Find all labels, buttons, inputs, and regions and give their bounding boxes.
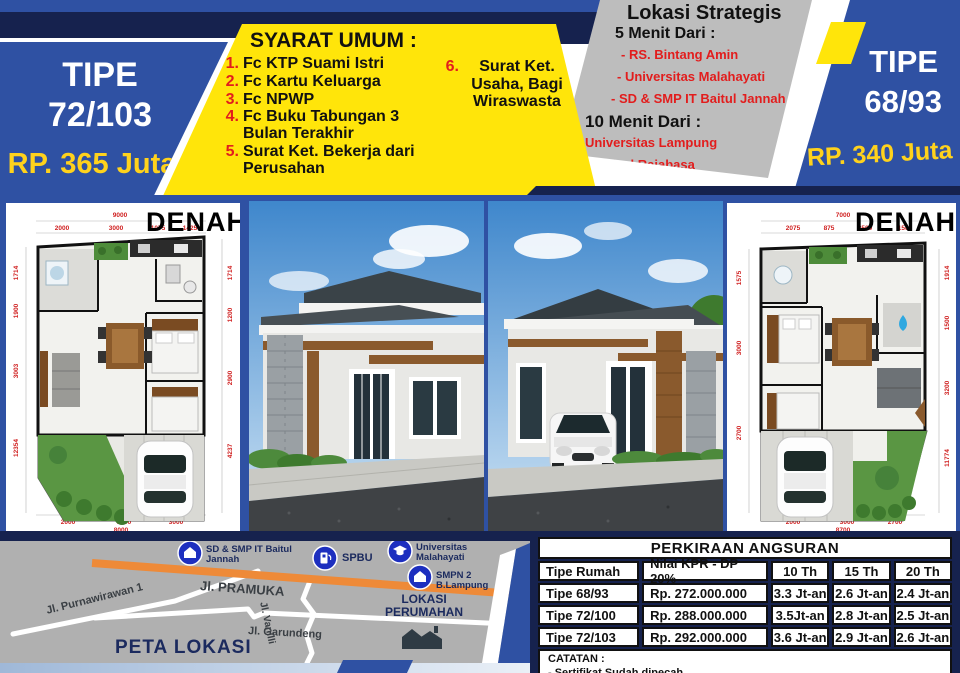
cell-10th: 3.3 Jt-an bbox=[771, 583, 829, 603]
syarat-item-number: 4. bbox=[217, 109, 243, 143]
table-header-row: Tipe Rumah Nilai KPR - DP 20% 10 Th 15 T… bbox=[538, 561, 952, 581]
syarat-item: 3. Fc NPWP bbox=[217, 92, 455, 109]
svg-text:7000: 7000 bbox=[836, 212, 851, 219]
car-top-view bbox=[137, 441, 193, 517]
floor-plan-left: 9000 2000 3000 1075 1425 1714 1900 3003 … bbox=[6, 203, 240, 533]
svg-text:12354: 12354 bbox=[13, 439, 20, 457]
cell-type: Tipe 72/100 bbox=[538, 605, 639, 625]
svg-text:1714: 1714 bbox=[227, 265, 234, 280]
svg-text:2000: 2000 bbox=[55, 225, 70, 232]
left-badge-price: RP. 365 Juta bbox=[0, 148, 192, 181]
school-icon bbox=[408, 565, 432, 589]
right-badge-type-size: 68/93 bbox=[864, 84, 942, 120]
lokasi-title: Lokasi Strategis bbox=[627, 2, 782, 25]
cell-10th: 3.5Jt-an bbox=[771, 605, 829, 625]
cell-10th: 3.6 Jt-an bbox=[771, 627, 829, 647]
svg-text:3000: 3000 bbox=[109, 225, 124, 232]
location-label: LOKASI PERUMAHAN bbox=[368, 593, 480, 619]
left-badge-type-word: TIPE bbox=[0, 56, 200, 95]
cell-type: Tipe 72/103 bbox=[538, 627, 639, 647]
floor-plan-left-drawing: 9000 2000 3000 1075 1425 1714 1900 3003 … bbox=[6, 203, 240, 533]
syarat-item-number: 5. bbox=[217, 144, 243, 178]
lokasi-group1-title: 5 Menit Dari : bbox=[615, 25, 715, 43]
car-top-view bbox=[777, 437, 833, 517]
right-badge-price: RP. 340 Juta bbox=[806, 136, 953, 173]
syarat-item-text: Surat Ket. Bekerja dari Perusahan bbox=[243, 144, 439, 178]
plan-label: DENAH bbox=[855, 207, 956, 238]
svg-text:1914: 1914 bbox=[944, 265, 951, 280]
cell-15th: 2.9 Jt-an bbox=[832, 627, 890, 647]
lokasi-item: - Universitas Lampung bbox=[577, 135, 717, 150]
svg-text:9000: 9000 bbox=[113, 212, 128, 219]
plan-label: DENAH bbox=[146, 207, 240, 238]
house-render-photo-2 bbox=[488, 201, 723, 533]
floor-plan-right: 7000 2075 875 2500 1500 1575 3000 2700 1… bbox=[727, 203, 956, 533]
marker-label: SD & SMP IT Baitul Jannah bbox=[206, 545, 314, 565]
cell-15th: 2.8 Jt-an bbox=[832, 605, 890, 625]
house-render-photo-1 bbox=[249, 201, 484, 533]
gallery-band: 9000 2000 3000 1075 1425 1714 1900 3003 … bbox=[0, 195, 960, 536]
header-cell: 10 Th bbox=[771, 561, 829, 581]
marker-label: Universitas Malahayati bbox=[416, 543, 494, 563]
real-estate-flyer: Lokasi Strategis 5 Menit Dari : - RS. Bi… bbox=[0, 0, 960, 673]
cell-20th: 2.4 Jt-an bbox=[894, 583, 952, 603]
floor-plan-right-drawing: 7000 2075 875 2500 1500 1575 3000 2700 1… bbox=[727, 203, 956, 533]
lokasi-item: - SD & SMP IT Baitul Jannah bbox=[611, 91, 786, 106]
cell-20th: 2.5 Jt-an bbox=[894, 605, 952, 625]
lokasi-item: - Terminal Rajabasa bbox=[573, 157, 695, 172]
map-title: PETA LOKASI bbox=[115, 637, 252, 659]
table-row: Tipe 68/93 Rp. 272.000.000 3.3 Jt-an 2.6… bbox=[538, 583, 952, 603]
marker-label: SMPN 2 B.Lampung bbox=[436, 571, 506, 591]
svg-text:3003: 3003 bbox=[13, 363, 20, 378]
svg-text:1900: 1900 bbox=[13, 303, 20, 318]
lokasi-group2-title: 10 Menit Dari : bbox=[585, 112, 701, 132]
syarat-item: 2. Fc Kartu Keluarga bbox=[217, 74, 455, 91]
table-note: CATATAN : - Sertifikat Sudah dipecah bbox=[538, 649, 952, 673]
syarat-item-text: Fc Buku Tabungan 3 Bulan Terakhir bbox=[243, 109, 439, 143]
location-map: SD & SMP IT Baitul Jannah SPBU Universit… bbox=[0, 541, 530, 663]
bottom-strip-blue-accent bbox=[337, 660, 413, 673]
lokasi-item: - RS. Bintang Amin bbox=[621, 47, 738, 62]
syarat-item-text: Fc Kartu Keluarga bbox=[243, 74, 439, 91]
cell-kpr: Rp. 292.000.000 bbox=[642, 627, 768, 647]
note-text: - Sertifikat Sudah dipecah bbox=[548, 666, 942, 673]
svg-text:3000: 3000 bbox=[736, 340, 743, 355]
cell-type: Tipe 68/93 bbox=[538, 583, 639, 603]
table-row: Tipe 72/103 Rp. 292.000.000 3.6 Jt-an 2.… bbox=[538, 627, 952, 647]
svg-text:1575: 1575 bbox=[736, 270, 743, 285]
svg-text:4237: 4237 bbox=[227, 443, 234, 458]
svg-text:2900: 2900 bbox=[227, 370, 234, 385]
right-badge-type-word: TIPE bbox=[869, 44, 938, 80]
school-icon bbox=[178, 541, 202, 565]
house-render-2-drawing bbox=[488, 201, 723, 533]
syarat-item-6: 6. Surat Ket. Usaha, Bagi Wiraswasta bbox=[437, 58, 573, 111]
syarat-item-text: Fc NPWP bbox=[243, 92, 439, 109]
svg-text:1500: 1500 bbox=[944, 315, 951, 330]
header-cell: Nilai KPR - DP 20% bbox=[642, 561, 768, 581]
svg-text:2075: 2075 bbox=[786, 225, 801, 232]
svg-text:1714: 1714 bbox=[13, 265, 20, 280]
lokasi-item: - Universitas Malahayati bbox=[617, 69, 765, 84]
house-render-1-drawing bbox=[249, 201, 484, 533]
svg-text:11774: 11774 bbox=[944, 449, 951, 467]
svg-text:2700: 2700 bbox=[736, 425, 743, 440]
cell-kpr: Rp. 272.000.000 bbox=[642, 583, 768, 603]
cell-kpr: Rp. 288.000.000 bbox=[642, 605, 768, 625]
syarat-item: 1. Fc KTP Suami Istri bbox=[217, 56, 455, 73]
syarat-title: SYARAT UMUM : bbox=[250, 29, 417, 53]
syarat-item-number: 6. bbox=[437, 58, 463, 111]
installment-panel: PERKIRAAN ANGSURAN Tipe Rumah Nilai KPR … bbox=[530, 531, 960, 673]
syarat-item: 5. Surat Ket. Bekerja dari Perusahan bbox=[217, 144, 455, 178]
table-row: Tipe 72/100 Rp. 288.000.000 3.5Jt-an 2.8… bbox=[538, 605, 952, 625]
syarat-item-number: 2. bbox=[217, 74, 243, 91]
header-cell: 15 Th bbox=[832, 561, 890, 581]
marker-label: SPBU bbox=[342, 553, 402, 565]
syarat-item: 4. Fc Buku Tabungan 3 Bulan Terakhir bbox=[217, 109, 455, 143]
cell-20th: 2.6 Jt-an bbox=[894, 627, 952, 647]
installment-table: PERKIRAAN ANGSURAN Tipe Rumah Nilai KPR … bbox=[538, 537, 952, 673]
syarat-list: 1. Fc KTP Suami Istri 2. Fc Kartu Keluar… bbox=[217, 56, 455, 179]
svg-text:875: 875 bbox=[824, 225, 835, 232]
syarat-item-number: 3. bbox=[217, 92, 243, 109]
fuel-pump-icon bbox=[313, 546, 337, 570]
svg-text:1200: 1200 bbox=[227, 307, 234, 322]
syarat-item-text: Fc KTP Suami Istri bbox=[243, 56, 439, 73]
header-cell: 20 Th bbox=[894, 561, 952, 581]
bottom-gradient-strip bbox=[0, 663, 530, 673]
header-cell: Tipe Rumah bbox=[538, 561, 639, 581]
note-title: CATATAN : bbox=[548, 652, 942, 666]
lokasi-strategis-panel: Lokasi Strategis 5 Menit Dari : - RS. Bi… bbox=[555, 0, 815, 178]
cell-15th: 2.6 Jt-an bbox=[832, 583, 890, 603]
svg-text:3200: 3200 bbox=[944, 380, 951, 395]
syarat-item-text: Surat Ket. Usaha, Bagi Wiraswasta bbox=[463, 58, 571, 111]
left-badge-type-size: 72/103 bbox=[0, 96, 200, 135]
